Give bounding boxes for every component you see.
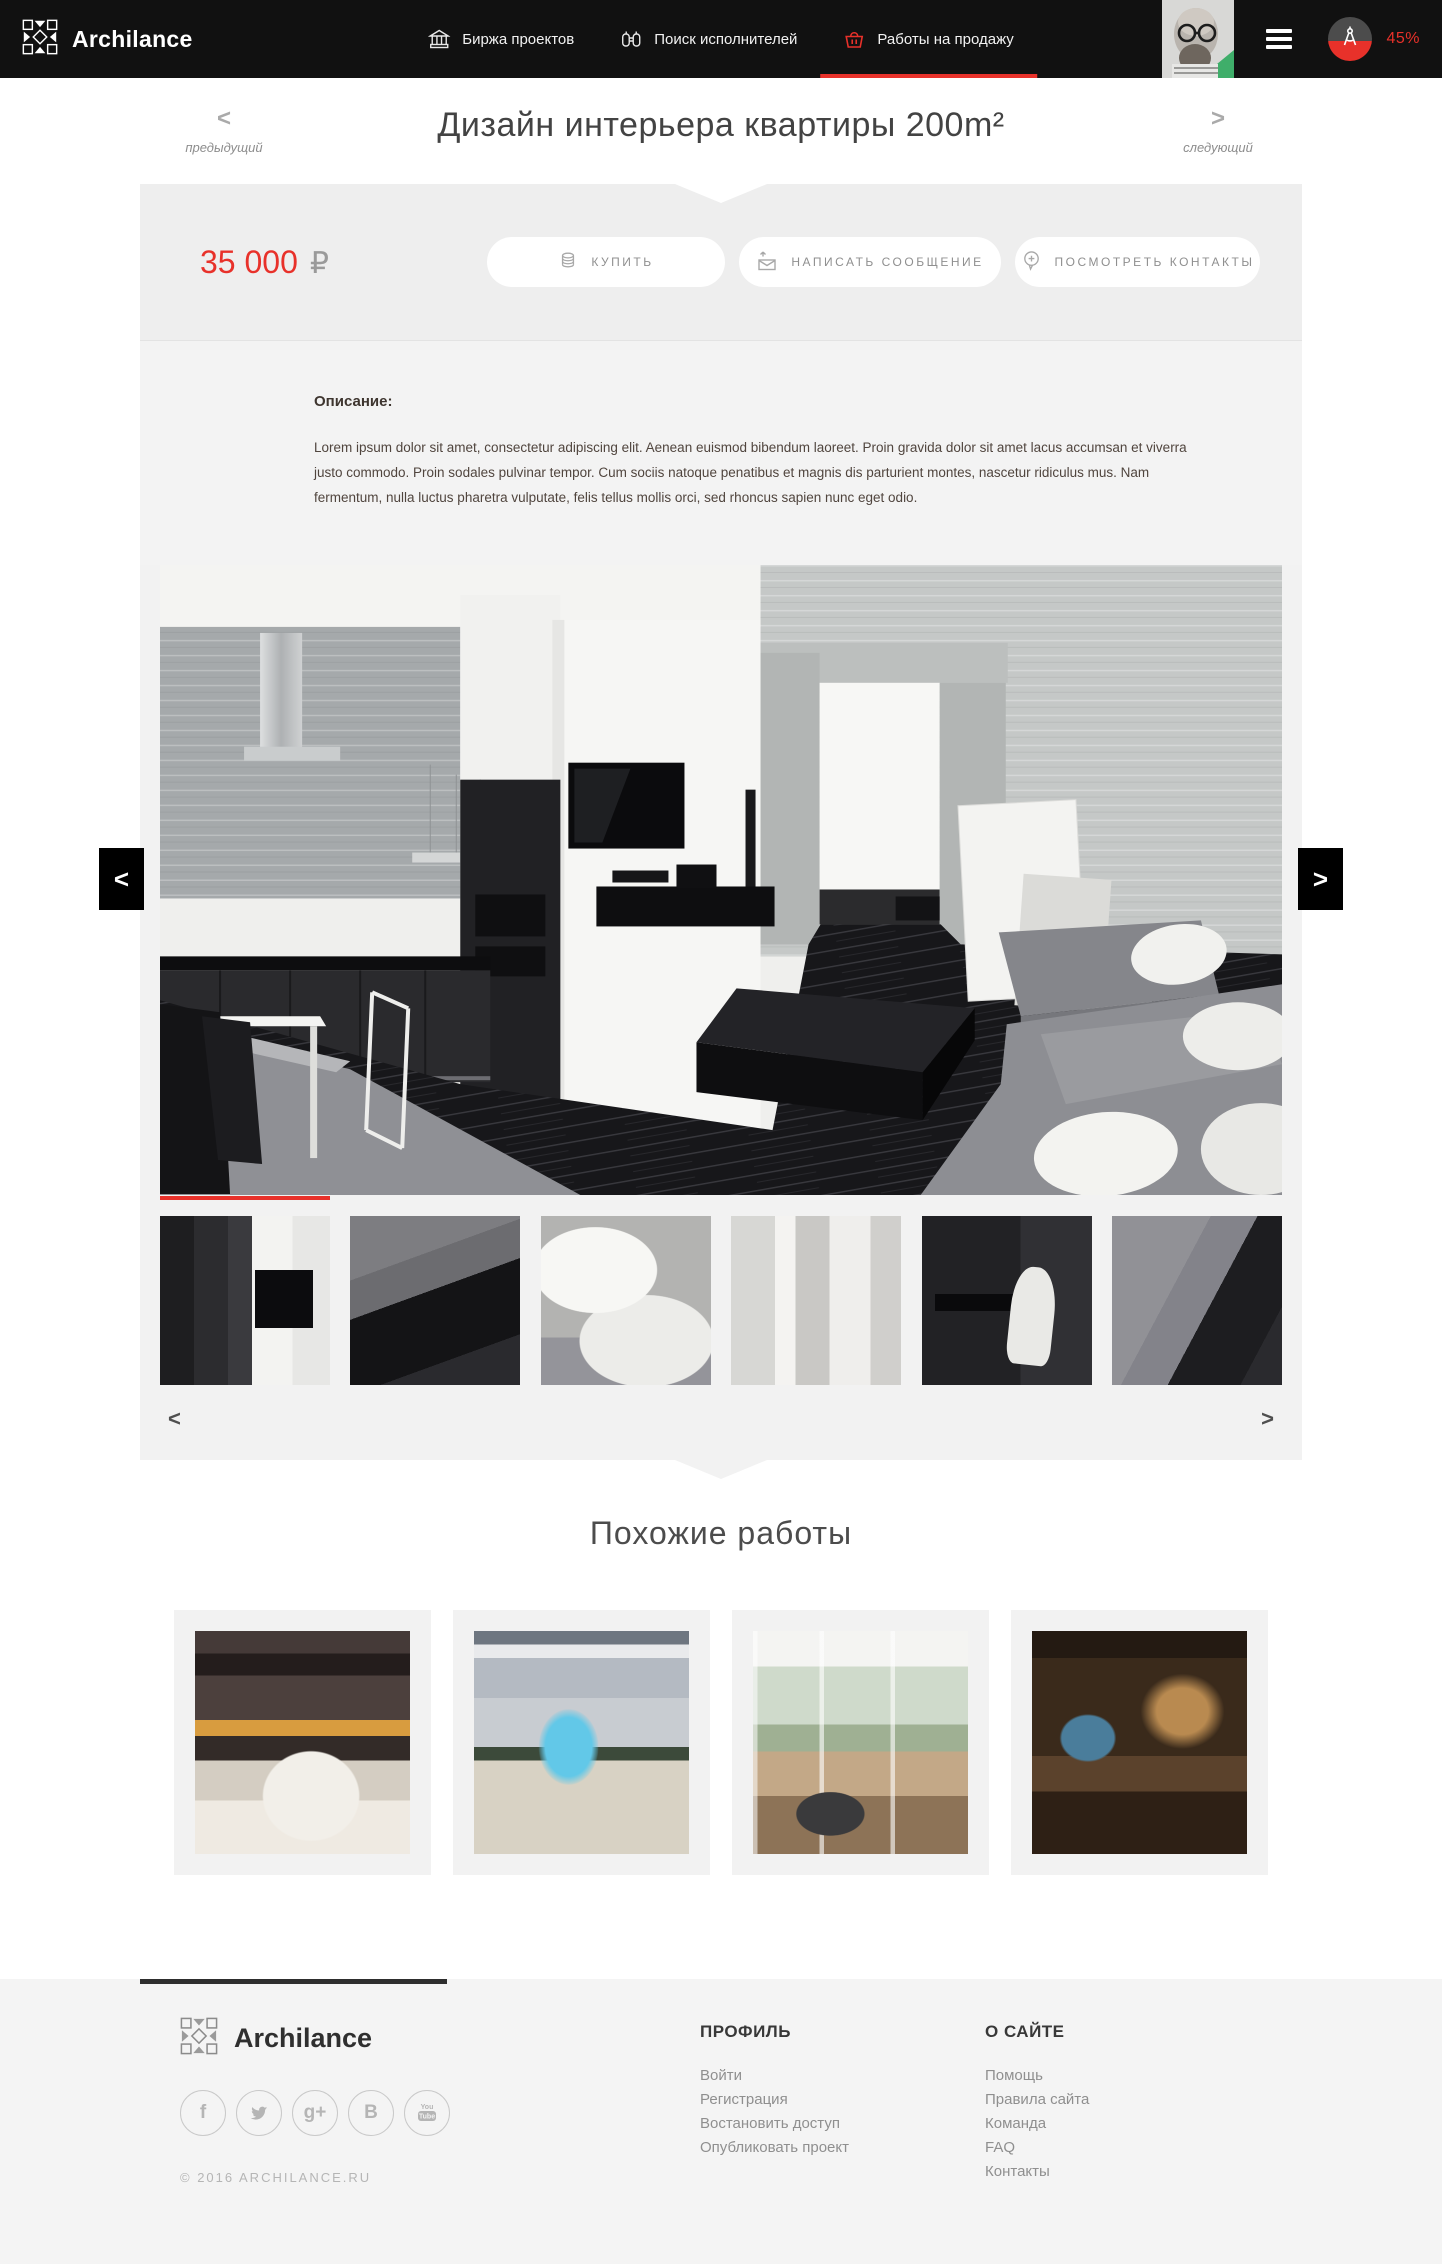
coins-icon <box>558 251 578 274</box>
main-photo: < > <box>160 565 1282 1195</box>
thumbnail-3-pillows[interactable] <box>541 1216 711 1385</box>
svg-text:You: You <box>421 2104 434 2111</box>
basket-icon <box>843 28 865 50</box>
price-value: 35 000 <box>200 244 298 281</box>
gallery-prev-button[interactable]: < <box>99 848 144 910</box>
copyright: © 2016 ARCHILANCE.RU <box>180 2170 700 2185</box>
vk-icon[interactable]: B <box>348 2090 394 2136</box>
price: 35 000 ₽ <box>200 244 329 281</box>
thumbnail-5-dining-chair[interactable] <box>922 1216 1092 1385</box>
nav-label: Поиск исполнителей <box>654 31 797 48</box>
similar-works-section: Похожие работы <box>140 1460 1302 1979</box>
user-avatar[interactable] <box>1162 0 1234 78</box>
progress-percent: 45% <box>1386 30 1420 48</box>
thumbnail-4-doorway[interactable] <box>731 1216 901 1385</box>
similar-card-mall-atrium[interactable] <box>453 1610 710 1875</box>
footer-accent-rule <box>140 1979 447 1984</box>
footer: Archilance f g+ B You Tube <box>0 1979 1442 2264</box>
purchase-bar: 35 000 ₽ КУПИТЬ <box>140 184 1302 341</box>
footer-link-site-rules[interactable]: Правила сайта <box>985 2088 1270 2112</box>
thumbnail-strip <box>160 1216 1282 1385</box>
footer-column-profile: ПРОФИЛЬ Войти Регистрация Востановить до… <box>700 2022 985 2185</box>
prev-work-label[interactable]: предыдущий <box>164 140 284 155</box>
card-photo <box>195 1631 410 1854</box>
next-work: > следующий <box>1158 110 1278 155</box>
buy-label: КУПИТЬ <box>591 255 653 269</box>
currency-ruble: ₽ <box>310 246 329 281</box>
footer-link-team[interactable]: Команда <box>985 2112 1270 2136</box>
nav-label: Работы на продажу <box>877 31 1013 48</box>
footer-link-restore-access[interactable]: Востановить доступ <box>700 2112 985 2136</box>
mail-icon <box>756 250 778 275</box>
nav-item-works-for-sale[interactable]: Работы на продажу <box>820 0 1036 78</box>
footer-link-login[interactable]: Войти <box>700 2064 985 2088</box>
footer-link-contacts[interactable]: Контакты <box>985 2160 1270 2184</box>
bank-icon <box>428 28 450 50</box>
social-links: f g+ B You Tube <box>180 2090 700 2136</box>
footer-brand-name: Archilance <box>234 2023 372 2054</box>
write-message-button[interactable]: НАПИСАТЬ СООБЩЕНИЕ <box>739 237 1001 287</box>
next-work-label[interactable]: следующий <box>1158 140 1278 155</box>
similar-card-living-room[interactable] <box>732 1610 989 1875</box>
thumbs-prev-arrow[interactable]: < <box>168 1407 181 1431</box>
similar-works-cards <box>140 1610 1302 1875</box>
logo-mark-icon <box>180 2017 218 2060</box>
logo[interactable]: Archilance <box>22 19 193 60</box>
google-plus-icon[interactable]: g+ <box>292 2090 338 2136</box>
gallery-next-button[interactable]: > <box>1298 848 1343 910</box>
thumbnail-pager: < > <box>160 1407 1282 1431</box>
thumbnail-1-wardrobe-tv[interactable] <box>160 1216 330 1385</box>
nav-item-search-performers[interactable]: Поиск исполнителей <box>597 0 820 78</box>
similar-works-heading: Похожие работы <box>140 1515 1302 1552</box>
footer-link-register[interactable]: Регистрация <box>700 2088 985 2112</box>
card-photo <box>1032 1631 1247 1854</box>
binoculars-icon <box>620 28 642 50</box>
footer-brand-block: Archilance f g+ B You Tube <box>140 2017 700 2185</box>
footer-link-help[interactable]: Помощь <box>985 2064 1270 2088</box>
pin-plus-icon <box>1021 250 1042 274</box>
purchase-actions: КУПИТЬ НАПИСАТЬ СООБЩЕНИЕ ПОСМОТРЕТЬ <box>487 237 1260 287</box>
facebook-icon[interactable]: f <box>180 2090 226 2136</box>
top-bar: Archilance Биржа проектов Поиск исполнит… <box>0 0 1442 78</box>
footer-link-publish-project[interactable]: Опубликовать проект <box>700 2136 985 2160</box>
compass-icon <box>1338 25 1362 54</box>
write-message-label: НАПИСАТЬ СООБЩЕНИЕ <box>791 255 983 269</box>
nav-label: Биржа проектов <box>462 31 574 48</box>
prev-work-arrow[interactable]: < <box>164 110 284 128</box>
page-title: Дизайн интерьера квартиры 200m² <box>140 78 1302 145</box>
main-nav: Биржа проектов Поиск исполнителей Работы… <box>405 0 1037 78</box>
view-contacts-label: ПОСМОТРЕТЬ КОНТАКТЫ <box>1055 255 1255 269</box>
view-contacts-button[interactable]: ПОСМОТРЕТЬ КОНТАКТЫ <box>1015 237 1260 287</box>
next-work-arrow[interactable]: > <box>1158 110 1278 128</box>
twitter-icon[interactable] <box>236 2090 282 2136</box>
similar-card-fireplace[interactable] <box>174 1610 431 1875</box>
thumbnail-6-sofa-corner[interactable] <box>1112 1216 1282 1385</box>
profile-progress-badge[interactable] <box>1328 17 1372 61</box>
footer-link-faq[interactable]: FAQ <box>985 2136 1270 2160</box>
nav-item-projects[interactable]: Биржа проектов <box>405 0 597 78</box>
work-title-block: < предыдущий Дизайн интерьера квартиры 2… <box>140 78 1302 184</box>
prev-work: < предыдущий <box>164 110 284 155</box>
footer-link-columns: ПРОФИЛЬ Войти Регистрация Востановить до… <box>700 2017 1270 2185</box>
header-right: 45% <box>1162 0 1428 78</box>
description-text: Lorem ipsum dolor sit amet, consectetur … <box>314 435 1199 510</box>
description-section: Описание: Lorem ipsum dolor sit amet, co… <box>140 341 1302 565</box>
thumbnail-2-coffee-table[interactable] <box>350 1216 520 1385</box>
card-photo <box>474 1631 689 1854</box>
brand-name: Archilance <box>72 26 193 53</box>
thumbs-next-arrow[interactable]: > <box>1261 1407 1274 1431</box>
footer-column-about: О САЙТЕ Помощь Правила сайта Команда FAQ… <box>985 2022 1270 2185</box>
footer-logo[interactable]: Archilance <box>180 2017 700 2060</box>
logo-mark-icon <box>22 19 58 60</box>
menu-icon[interactable] <box>1266 29 1292 49</box>
active-thumbnail-indicator <box>160 1196 330 1200</box>
description-heading: Описание: <box>314 393 1282 410</box>
gallery-section: < > < > <box>140 565 1302 1460</box>
interior-photo-art <box>160 565 1282 1195</box>
card-photo <box>753 1631 968 1854</box>
youtube-icon[interactable]: You Tube <box>404 2090 450 2136</box>
footer-column-title: О САЙТЕ <box>985 2022 1270 2042</box>
buy-button[interactable]: КУПИТЬ <box>487 237 725 287</box>
footer-column-title: ПРОФИЛЬ <box>700 2022 985 2042</box>
svg-text:Tube: Tube <box>419 2114 435 2121</box>
similar-card-library[interactable] <box>1011 1610 1268 1875</box>
